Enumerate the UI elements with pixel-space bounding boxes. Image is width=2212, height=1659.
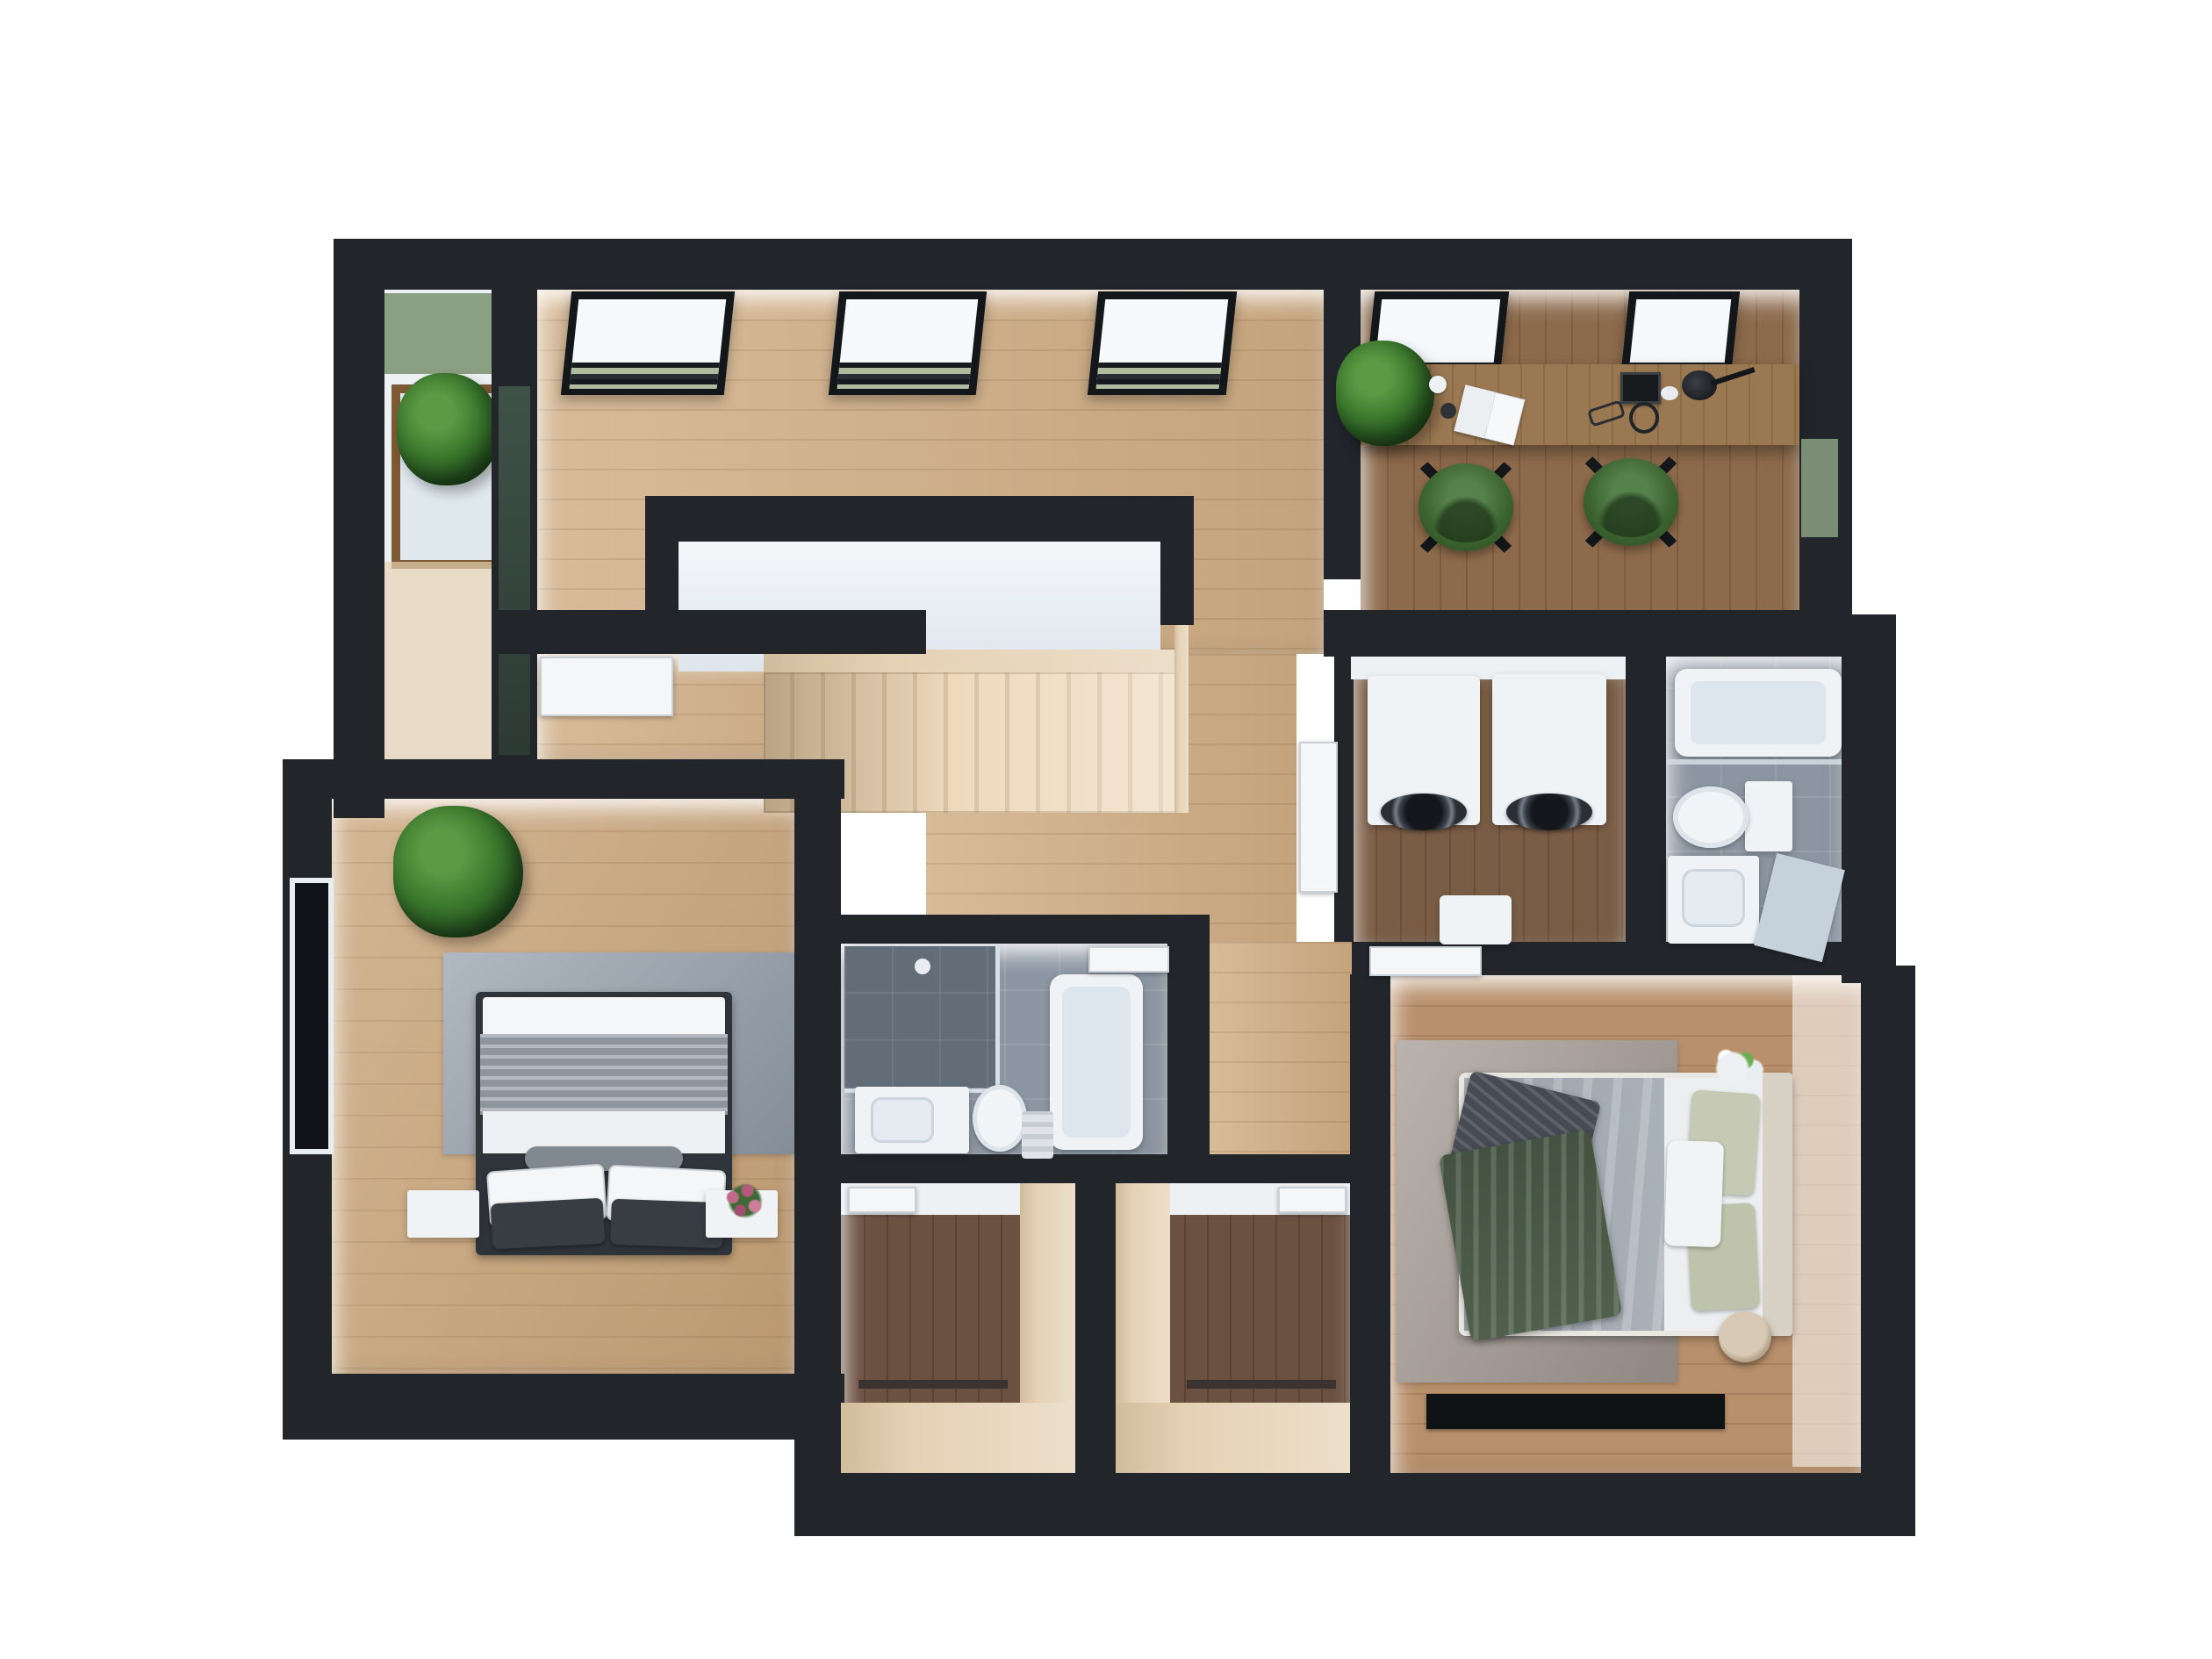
toilet-tank [1745, 781, 1792, 851]
office-book [1620, 372, 1661, 404]
skylight-icon [561, 291, 735, 395]
ensuite-towel [1022, 1111, 1053, 1159]
office-headphones-icon [1629, 402, 1659, 434]
balustrade-half-wall [645, 496, 1194, 542]
tumble-dryer [1492, 674, 1606, 825]
skylight-icon [829, 291, 987, 395]
wall-left-upper [334, 239, 384, 818]
ensuite-basin [871, 1097, 934, 1143]
bedroom2-plant-icon [393, 806, 523, 937]
master-door [1369, 946, 1482, 976]
ensuite-bathtub-basin [1062, 987, 1131, 1138]
bathroom-basin [1682, 869, 1745, 927]
office-cup [1429, 376, 1447, 393]
bed2-pillow-dark-left [491, 1198, 606, 1250]
wall-laundry-bath-divider [1626, 657, 1666, 961]
floorplan-canvas [0, 0, 2212, 1659]
dryer-door-icon [1506, 794, 1593, 830]
master-side-table [1719, 1311, 1771, 1362]
shower-head-icon [915, 959, 930, 974]
wall-right-middle [1842, 614, 1896, 983]
balustrade-return-right [1160, 542, 1194, 625]
master-floor-mat [1426, 1394, 1725, 1429]
wall-hall-inner-divider [492, 610, 926, 654]
nightstand-flowers-icon [718, 1180, 767, 1224]
office-chair-2 [1584, 458, 1678, 546]
master-green-throw [1439, 1129, 1623, 1341]
bed2-knit-blanket [480, 1034, 728, 1115]
skylight-icon [1088, 291, 1237, 395]
hall-glazed-partition [499, 386, 530, 755]
loggia-plant-icon [397, 373, 500, 485]
closet2-rail-icon [1187, 1380, 1336, 1389]
loggia-green-wall [384, 293, 492, 374]
ensuite-door [1088, 946, 1169, 973]
office-plant-icon [1336, 341, 1434, 446]
ensuite-toilet [973, 1085, 1027, 1152]
laundry-hamper [1440, 895, 1512, 944]
office-coaster [1440, 403, 1456, 419]
wall-bottom [794, 1473, 1915, 1536]
washer-door-icon [1381, 794, 1466, 830]
wall-ensuite-top [841, 915, 1210, 944]
wall-closet-divider [1075, 1183, 1116, 1473]
closet1-rail-icon [858, 1380, 1008, 1389]
wall-ensuite-right [1167, 915, 1210, 1183]
inner-room-door [540, 657, 673, 716]
office-cup-2 [1661, 386, 1678, 400]
master-window-light [1792, 975, 1861, 1467]
wall-top [334, 239, 1848, 290]
wall-closet2-top [1210, 1154, 1350, 1183]
wall-right-lower [1861, 966, 1915, 1479]
closet1-door [848, 1187, 916, 1213]
laundry-door [1299, 742, 1338, 893]
master-flower-vase-icon [1706, 1039, 1771, 1092]
bathtub-basin [1691, 681, 1826, 744]
master-headboard [1763, 1073, 1792, 1336]
wall-master-left [1350, 974, 1390, 1473]
wall-office-bottom [1324, 610, 1850, 657]
floor-corridor-lower [1210, 942, 1352, 1154]
chair-seat [1418, 463, 1513, 551]
washing-machine [1368, 676, 1480, 825]
wall-bedroom2-ensuite [794, 759, 841, 1492]
shower-screen [1666, 759, 1842, 765]
balustrade-return-left [645, 496, 679, 614]
office-chair-1 [1418, 463, 1513, 551]
toilet [1673, 786, 1749, 848]
master-pillow-white [1664, 1140, 1724, 1247]
closet1-wardrobe-bottom [841, 1403, 1075, 1473]
closet2-door [1278, 1187, 1347, 1213]
bedroom2-window [290, 878, 334, 1154]
closet2-wardrobe-bottom [1116, 1403, 1350, 1473]
nightstand-left [407, 1190, 479, 1238]
chair-seat [1584, 458, 1678, 546]
wall-bedroom2-top [283, 759, 844, 799]
office-side-window [1801, 439, 1838, 537]
wall-bedroom2-bottom [283, 1374, 844, 1440]
